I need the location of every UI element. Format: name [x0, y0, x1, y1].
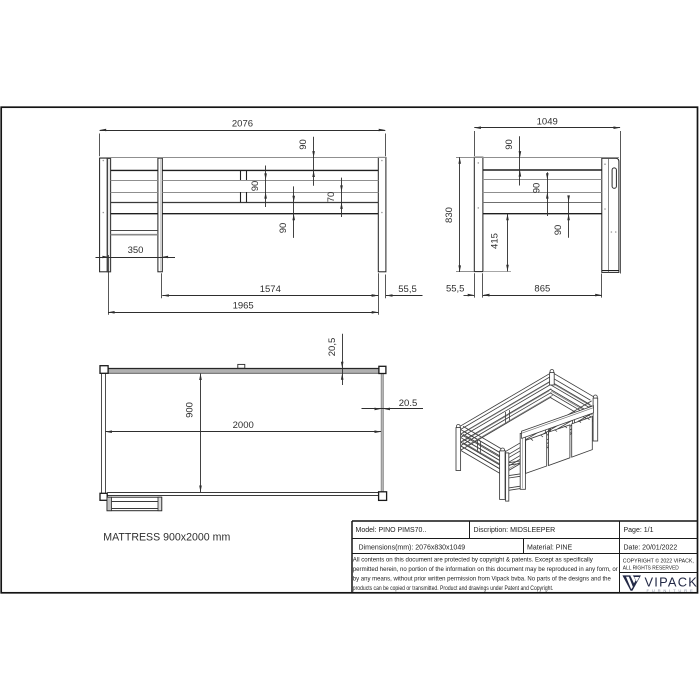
- svg-text:MATTRESS 900x2000 mm: MATTRESS 900x2000 mm: [103, 531, 230, 543]
- svg-text:1049: 1049: [537, 116, 558, 127]
- svg-text:Page: 1/1: Page: 1/1: [624, 527, 654, 534]
- svg-text:Discription: MIDSLEEPER: Discription: MIDSLEEPER: [474, 527, 556, 534]
- svg-text:1965: 1965: [233, 301, 254, 312]
- svg-text:900: 900: [184, 402, 195, 418]
- svg-text:55,5: 55,5: [398, 284, 417, 295]
- svg-text:Dimensions(mm): 2076x830x1049: Dimensions(mm): 2076x830x1049: [359, 545, 466, 552]
- svg-text:All contents on this document: All contents on this document are protec…: [353, 557, 593, 563]
- svg-text:350: 350: [128, 245, 144, 256]
- svg-text:90: 90: [278, 223, 289, 234]
- svg-text:2076: 2076: [232, 119, 253, 130]
- svg-text:20.5: 20.5: [399, 398, 418, 409]
- svg-text:830: 830: [444, 207, 455, 223]
- svg-text:415: 415: [489, 233, 500, 249]
- svg-text:55,5: 55,5: [446, 283, 465, 294]
- svg-text:Material: PINE: Material: PINE: [527, 545, 572, 552]
- svg-text:1574: 1574: [260, 284, 281, 295]
- svg-text:by any means, without prior wr: by any means, without prior written perm…: [353, 577, 612, 583]
- svg-text:20,5: 20,5: [327, 338, 338, 357]
- svg-text:Model: PINO PIMS70..: Model: PINO PIMS70..: [356, 527, 427, 534]
- svg-text:ALL RIGHTS RESERVED: ALL RIGHTS RESERVED: [623, 566, 679, 572]
- svg-text:permitted herein, no portion o: permitted herein, no portion of the info…: [353, 567, 618, 573]
- svg-text:90: 90: [504, 139, 515, 150]
- svg-text:90: 90: [553, 225, 564, 236]
- svg-text:865: 865: [534, 283, 550, 294]
- svg-text:2000: 2000: [233, 420, 254, 431]
- svg-text:COPYRIGHT © 2022 VIPACK,: COPYRIGHT © 2022 VIPACK,: [623, 557, 694, 564]
- svg-text:90: 90: [532, 183, 543, 194]
- svg-text:90: 90: [298, 139, 309, 150]
- svg-text:FURNITURE: FURNITURE: [647, 589, 696, 593]
- svg-text:70: 70: [326, 192, 337, 203]
- svg-text:90: 90: [250, 181, 261, 192]
- svg-text:VIPACK: VIPACK: [645, 575, 699, 589]
- svg-text:products can be copied or tran: products can be copied or transmitted. P…: [353, 586, 554, 592]
- svg-text:Date: 20/01/2022: Date: 20/01/2022: [624, 545, 678, 552]
